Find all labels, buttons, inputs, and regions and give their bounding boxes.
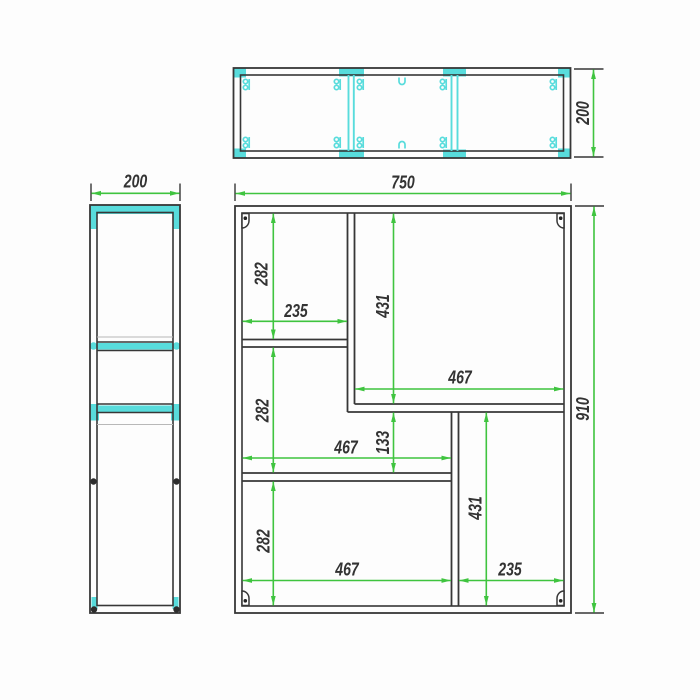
svg-text:282: 282 [254,529,274,553]
svg-text:431: 431 [466,496,486,520]
svg-text:282: 282 [252,262,272,286]
svg-text:133: 133 [373,431,393,455]
svg-text:467: 467 [447,368,472,388]
svg-text:200: 200 [573,101,593,125]
svg-text:750: 750 [391,173,415,193]
svg-text:282: 282 [253,399,273,423]
svg-text:910: 910 [573,397,593,421]
svg-text:235: 235 [497,560,522,580]
svg-text:235: 235 [283,301,308,321]
svg-text:200: 200 [123,172,147,192]
svg-text:467: 467 [333,438,358,458]
svg-text:467: 467 [334,560,359,580]
svg-text:431: 431 [373,294,393,318]
